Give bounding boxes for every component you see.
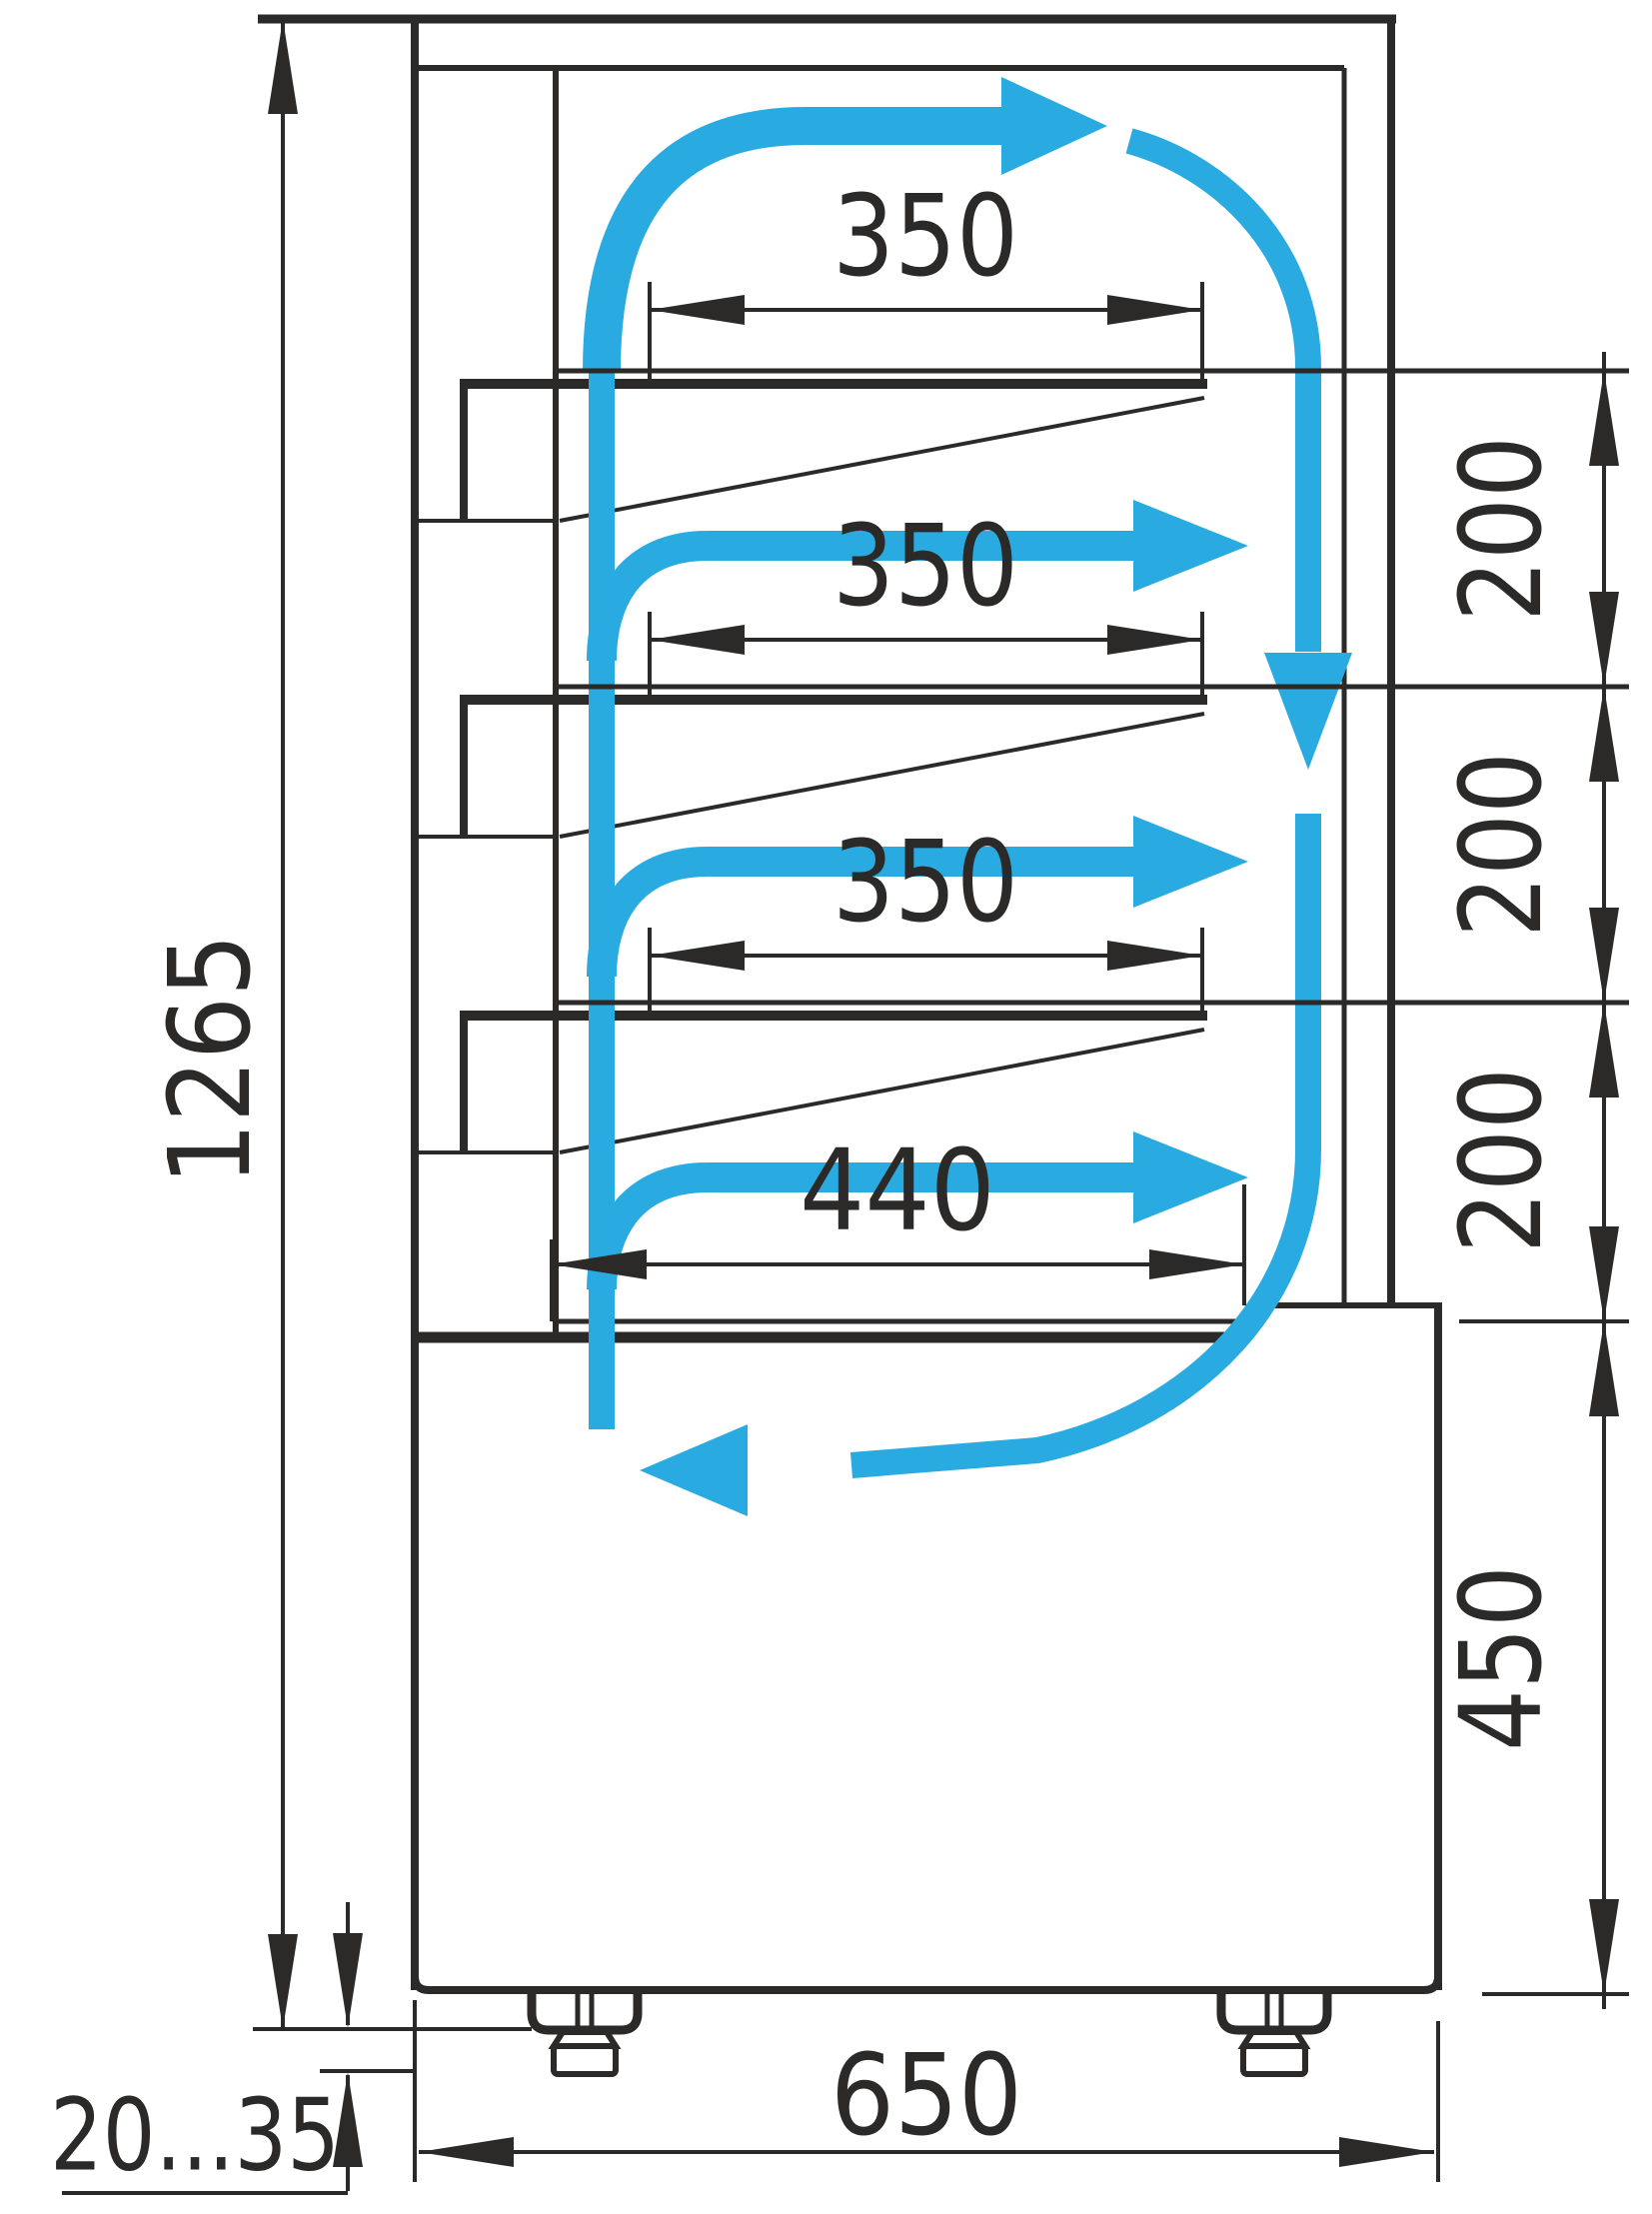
airflow-shelf-arrow-2-icon (1133, 816, 1248, 908)
arrow-left-icon (419, 2137, 514, 2167)
shelf-1 (415, 379, 1207, 521)
dim-label-shelf-1: 350 (832, 172, 1018, 302)
left-foot-housing (532, 1994, 638, 2030)
base-bottom (415, 1959, 1438, 1990)
arrow-right-icon (1149, 1249, 1244, 1279)
airflow-return-arrow-icon (640, 1424, 748, 1516)
dim-label-shelf-2: 350 (832, 502, 1018, 632)
dim-label-shelf-3: 350 (832, 818, 1018, 948)
airflow-shelf-arrow-1-icon (1133, 500, 1248, 592)
arrow-right-icon (1107, 625, 1202, 655)
left-foot (532, 1994, 638, 2074)
dim-label-overall-height: 1265 (146, 934, 276, 1185)
drawing-page: 1265 350 350 350 (0, 0, 1652, 2214)
right-foot (1221, 1994, 1327, 2074)
airflow-shelf-arrow-3-icon (1133, 1131, 1248, 1223)
dim-label-gap-3: 200 (1437, 1068, 1567, 1253)
arrow-left-icon (650, 941, 745, 971)
arrow-left-icon (650, 625, 745, 655)
shelf-2 (415, 695, 1207, 837)
display-case-section-drawing: 1265 350 350 350 (0, 0, 1652, 2214)
right-foot-pad (1243, 2046, 1305, 2074)
arrow-down-icon (1589, 1899, 1619, 1994)
dim-right-chain: 200 200 200 450 (1437, 352, 1619, 2009)
arrow-down-icon (1589, 908, 1619, 1003)
right-foot-housing (1221, 1994, 1327, 2030)
dim-label-gap-1: 200 (1437, 436, 1567, 622)
left-foot-pad (554, 2046, 616, 2074)
arrow-up-icon (1589, 1003, 1619, 1098)
dim-label-leg-adjust: 20...35 (50, 2077, 340, 2194)
arrow-right-icon (1107, 295, 1202, 325)
arrow-up-icon (1589, 371, 1619, 466)
arrow-down-icon (333, 1933, 363, 2028)
dim-label-overall-depth: 650 (830, 2031, 1022, 2161)
arrow-right-icon (1107, 941, 1202, 971)
cabinet-structure (258, 15, 1442, 2074)
arrow-down-icon (1589, 592, 1619, 687)
arrow-right-icon (1339, 2137, 1434, 2167)
arrow-left-icon (650, 295, 745, 325)
arrow-up-icon (268, 19, 298, 114)
dim-leg-adjust: 20...35 (50, 1902, 415, 2194)
dim-label-base-height: 450 (1437, 1565, 1567, 1751)
airflow-top-arrow-icon (1001, 77, 1107, 175)
dim-overall-height: 1265 (146, 19, 532, 2029)
arrow-down-icon (1589, 1226, 1619, 1321)
arrow-up-icon (1589, 1321, 1619, 1416)
airflow-down-arrow-icon (1264, 653, 1352, 770)
dim-label-gap-2: 200 (1437, 752, 1567, 938)
dim-label-bottom-shelf: 440 (800, 1126, 995, 1256)
dim-shelf-1-depth: 350 (650, 172, 1202, 387)
arrow-down-icon (268, 1934, 298, 2029)
arrow-up-icon (1589, 687, 1619, 782)
